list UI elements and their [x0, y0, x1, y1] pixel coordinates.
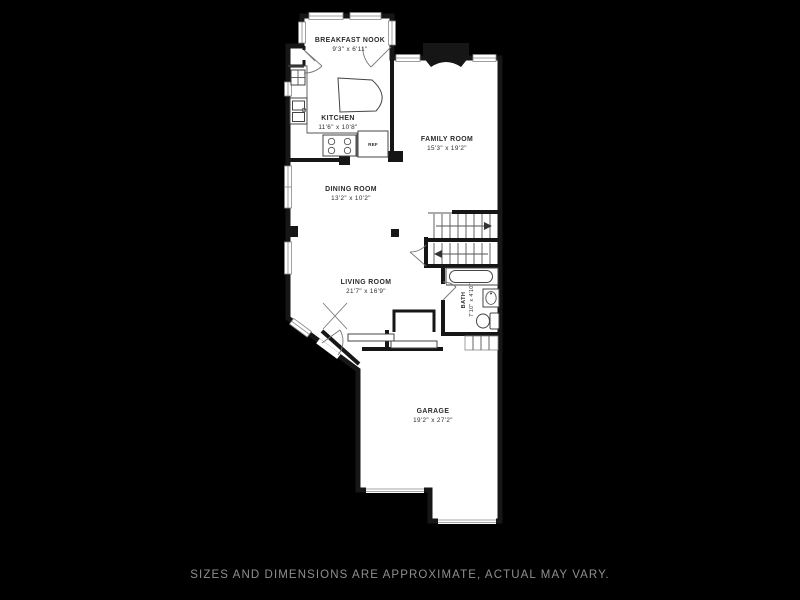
- window: [285, 166, 292, 208]
- floor-plan-page: REF BATH 7'10" x 4'10": [0, 0, 800, 600]
- living-room-dims: 21'7" x 16'9": [346, 288, 386, 295]
- bath-sink-icon: [483, 289, 499, 307]
- bath-steps: [465, 336, 498, 350]
- kitchen-sink-icon: [290, 98, 307, 124]
- garage-dims: 19'2" x 27'2": [413, 417, 453, 424]
- breakfast-nook-dims: 9'3" x 6'11": [332, 46, 367, 53]
- disclaimer-caption: SIZES AND DIMENSIONS ARE APPROXIMATE, AC…: [0, 569, 800, 581]
- dining-room-label: DINING ROOM: [325, 186, 377, 193]
- garage-door: [366, 487, 424, 493]
- garage-label: GARAGE: [417, 408, 450, 415]
- stove-icon: [323, 135, 356, 156]
- window: [285, 82, 292, 96]
- family-room-dims: 15'3" x 19'2": [427, 145, 467, 152]
- bathtub-icon: [446, 268, 498, 285]
- window: [389, 21, 396, 45]
- refrigerator-label: REF: [368, 142, 378, 147]
- window: [473, 55, 496, 62]
- window: [285, 242, 292, 274]
- window: [299, 22, 306, 43]
- bath-label: BATH: [461, 292, 467, 309]
- window: [309, 13, 343, 20]
- living-room-label: LIVING ROOM: [341, 279, 392, 286]
- garage-door: [438, 518, 496, 524]
- kitchen-island: [338, 78, 382, 112]
- family-room-label: FAMILY ROOM: [421, 136, 473, 143]
- dining-room-dims: 13'2" x 10'2": [331, 195, 371, 202]
- window: [396, 55, 420, 62]
- dishwasher-icon: [291, 70, 305, 85]
- window: [350, 13, 381, 20]
- floor-plan: REF BATH 7'10" x 4'10": [0, 0, 800, 600]
- bath-dims: 7'10" x 4'10": [469, 283, 475, 317]
- kitchen-label: KITCHEN: [321, 115, 354, 122]
- kitchen-dims: 11'6" x 10'8": [318, 124, 357, 131]
- breakfast-nook-label: BREAKFAST NOOK: [315, 37, 385, 44]
- refrigerator-icon: REF: [358, 131, 388, 157]
